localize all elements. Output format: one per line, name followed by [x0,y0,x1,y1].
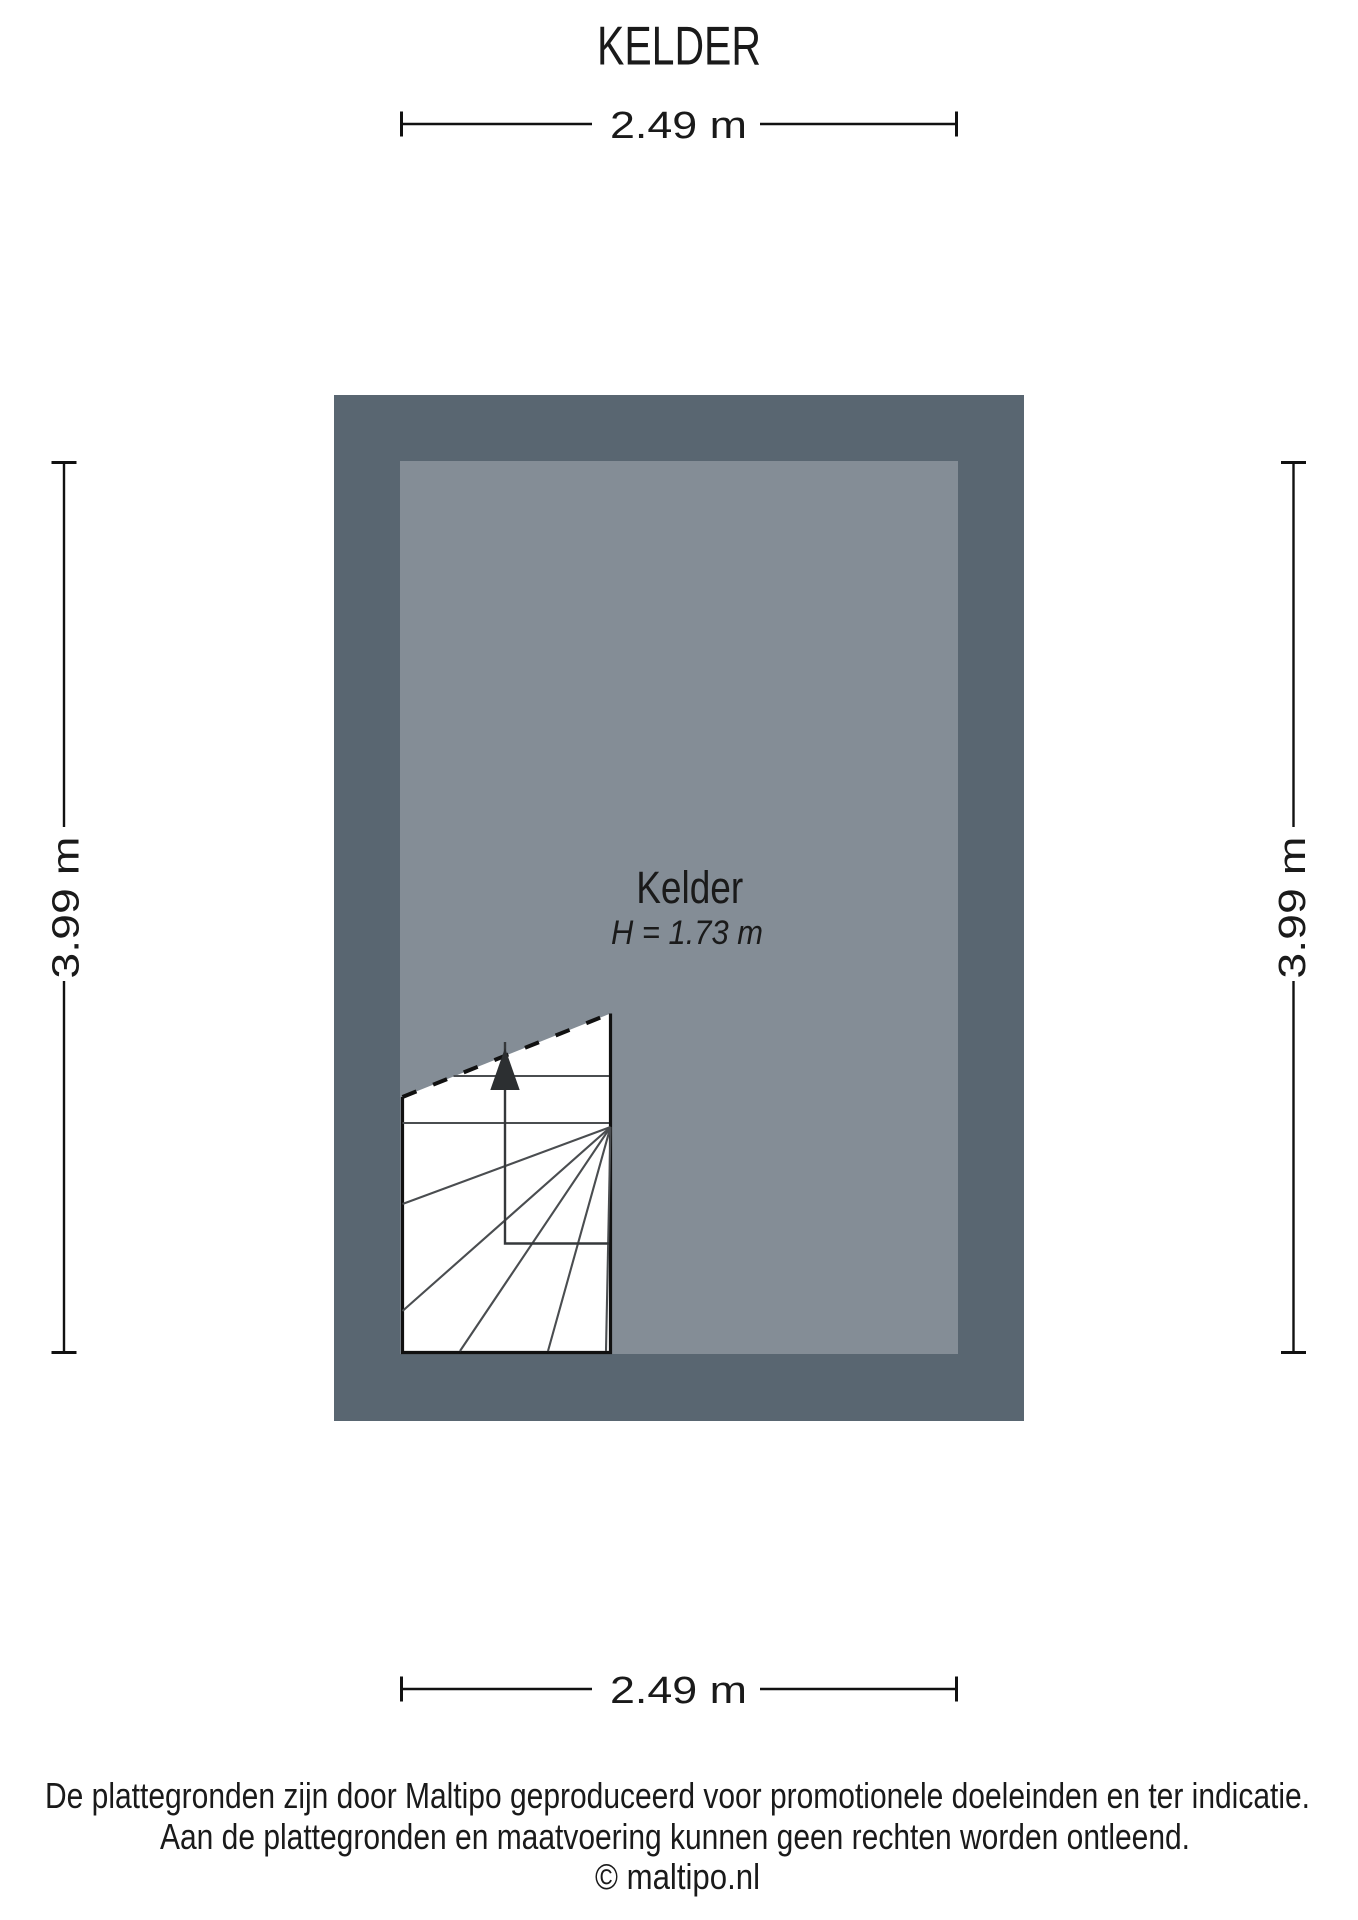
svg-text:De plattegronden zijn door Mal: De plattegronden zijn door Maltipo gepro… [45,1775,1310,1816]
svg-text:2.49 m: 2.49 m [610,105,747,147]
svg-text:2.49 m: 2.49 m [610,1670,747,1712]
svg-text:KELDER: KELDER [597,15,761,77]
svg-text:H = 1.73 m: H = 1.73 m [611,914,763,952]
svg-text:Kelder: Kelder [636,862,743,913]
svg-text:3.99 m: 3.99 m [1272,837,1314,979]
svg-text:© maltipo.nl: © maltipo.nl [595,1856,760,1897]
svg-text:Aan de plattegronden en maatvo: Aan de plattegronden en maatvoering kunn… [160,1816,1190,1857]
svg-text:3.99 m: 3.99 m [46,837,88,979]
